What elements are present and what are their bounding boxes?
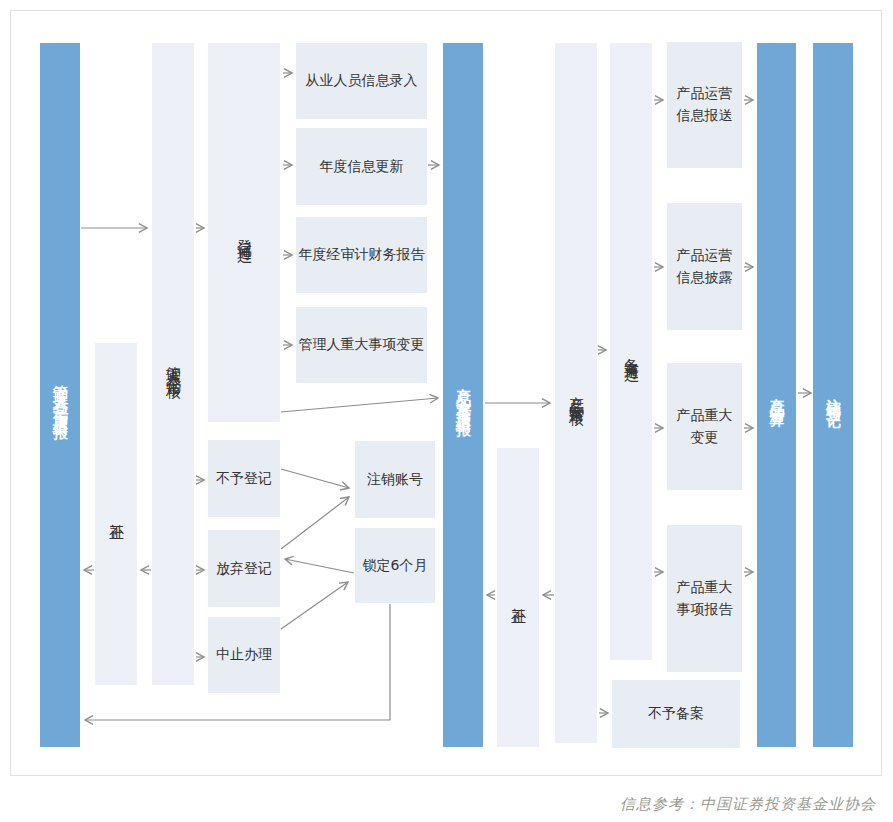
box-annual-audited-financial-report: 年度经审计财务报告 — [296, 217, 427, 293]
column-product-filing-review: 产品备案审核 — [555, 43, 597, 743]
column-registration-passed: 登记通过 — [208, 43, 280, 422]
box-suspend-processing: 中止办理 — [208, 617, 280, 693]
bar-manager-registration-info-fill: 管理人登记信息填报 — [40, 43, 80, 747]
column-correction-2: 补正 — [497, 448, 539, 747]
box-product-major-event-report: 产品重大 事项报告 — [667, 525, 742, 672]
bar-deregistration: 注销登记 — [813, 43, 853, 747]
box-annual-info-update: 年度信息更新 — [296, 128, 427, 205]
column-correction-1: 补正 — [95, 343, 137, 685]
caption: 信息参考：中国证券投资基金业协会 — [620, 795, 876, 814]
column-manager-registration-review: 管理人登记审核 — [152, 43, 194, 685]
box-no-filing: 不予备案 — [612, 680, 740, 748]
box-cancel-account: 注销账号 — [355, 441, 435, 518]
box-product-major-change: 产品重大 变更 — [667, 363, 742, 490]
column-filing-passed: 备案通过 — [610, 43, 652, 660]
box-product-operation-info-submission: 产品运营 信息报送 — [667, 42, 742, 168]
box-abandon-registration: 放弃登记 — [208, 530, 280, 607]
box-staff-info-entry: 从业人员信息录入 — [296, 43, 427, 119]
bar-product-filing-info-fill: 产品备案信息填报 — [443, 43, 483, 747]
box-lock-6-months: 锁定6个月 — [355, 528, 435, 603]
box-product-operation-info-disclosure: 产品运营 信息披露 — [667, 203, 742, 330]
bar-product-liquidation: 产品清算 — [757, 43, 796, 747]
box-manager-major-event-change: 管理人重大事项变更 — [296, 307, 427, 383]
flowchart-canvas: 管理人登记信息填报 产品备案信息填报 产品清算 注销登记 补正 管理人登记审核 … — [0, 0, 893, 822]
box-no-registration: 不予登记 — [208, 440, 280, 517]
